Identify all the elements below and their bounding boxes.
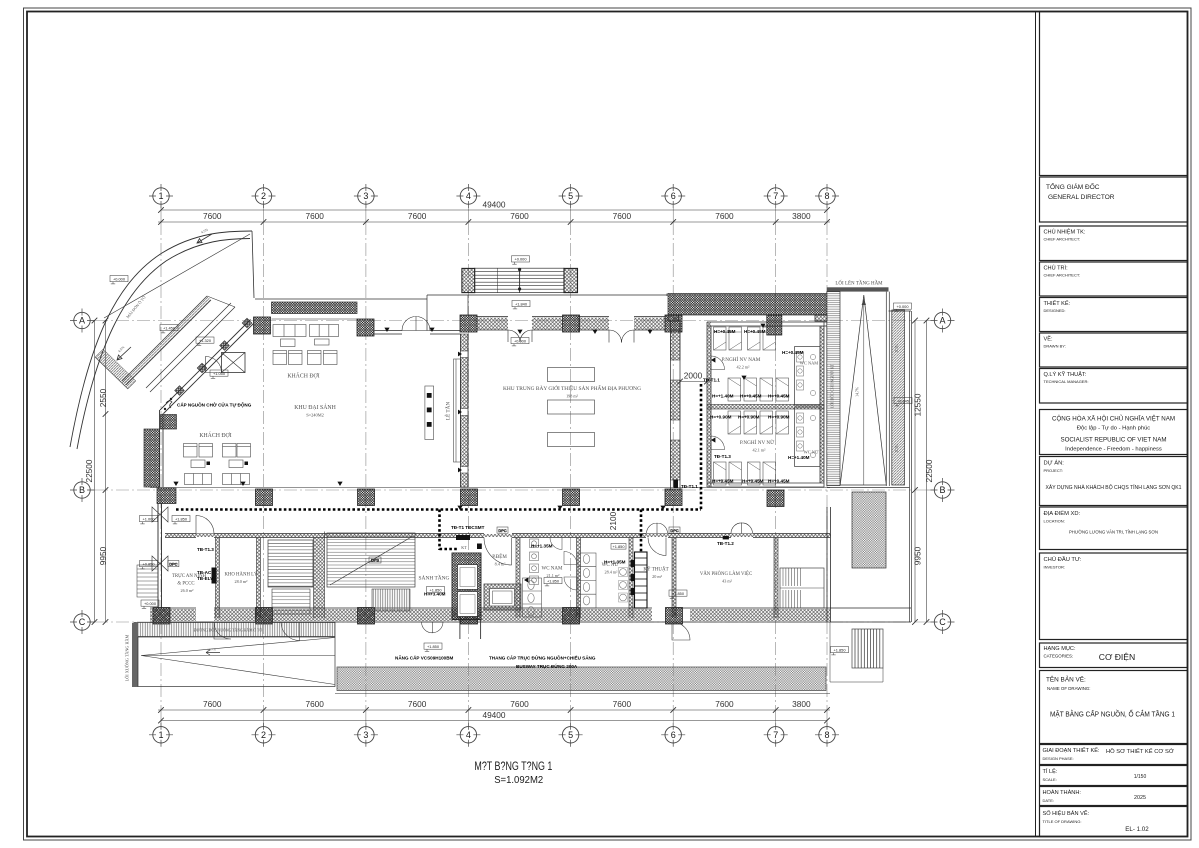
svg-text:TB-T1.2: TB-T1.2 <box>717 541 734 546</box>
svg-text:A: A <box>939 316 945 326</box>
svg-text:20 m²: 20 m² <box>652 574 662 579</box>
svg-text:CHỦ ĐẦU TƯ:: CHỦ ĐẦU TƯ: <box>1044 556 1082 563</box>
svg-text:2100: 2100 <box>608 511 618 530</box>
svg-text:TĐ-T1.1: TĐ-T1.1 <box>681 484 698 489</box>
svg-text:TECHNICAL MANAGER:: TECHNICAL MANAGER: <box>1044 379 1089 384</box>
svg-text:C: C <box>79 617 86 627</box>
svg-text:7600: 7600 <box>408 211 427 221</box>
svg-text:+1.320: +1.320 <box>199 338 212 343</box>
svg-text:+1.000: +1.000 <box>142 516 155 521</box>
svg-text:MẶT BẰNG CẤP NGUỒN, Ổ CẮM TẦNG: MẶT BẰNG CẤP NGUỒN, Ổ CẮM TẦNG 1 <box>1050 709 1175 719</box>
svg-text:LỄ TÂN: LỄ TÂN <box>444 402 452 420</box>
svg-text:+1.850: +1.850 <box>429 587 442 592</box>
svg-text:+0.000: +0.000 <box>113 276 126 281</box>
svg-text:22500: 22500 <box>924 459 934 482</box>
svg-text:CHỦ NHIỆM TK:: CHỦ NHIỆM TK: <box>1044 228 1086 236</box>
svg-text:Độc lập - Tự do - Hạnh phúc: Độc lập - Tự do - Hạnh phúc <box>1077 426 1150 432</box>
svg-text:KT: KT <box>461 545 467 550</box>
svg-text:TĐ-T1.3: TĐ-T1.3 <box>714 454 731 459</box>
svg-text:CHIEF ARCHITECT:: CHIEF ARCHITECT: <box>1044 237 1080 242</box>
svg-text:VẼ:: VẼ: <box>1044 336 1053 343</box>
svg-text:28.4 m²: 28.4 m² <box>605 570 619 575</box>
svg-text:2: 2 <box>261 730 266 740</box>
svg-text:INVESTOR:: INVESTOR: <box>1044 565 1066 570</box>
svg-text:DESIGN PHASE:: DESIGN PHASE: <box>1043 756 1074 761</box>
svg-text:TB-T1.3: TB-T1.3 <box>197 547 214 552</box>
svg-text:3: 3 <box>363 730 368 740</box>
svg-text:PHƯỜNG LƯƠNG VĂN TRI, TỈNH LẠN: PHƯỜNG LƯƠNG VĂN TRI, TỈNH LẠNG SƠN <box>1069 530 1158 535</box>
svg-text:7600: 7600 <box>715 211 734 221</box>
svg-text:SẢNH TẦNG: SẢNH TẦNG <box>419 574 450 582</box>
svg-text:NAME OF DRAWING:: NAME OF DRAWING: <box>1047 686 1091 691</box>
svg-text:H=+0.45M: H=+0.45M <box>744 329 766 334</box>
svg-text:+1.850: +1.850 <box>612 544 625 549</box>
svg-text:TITLE OF DRAWING:: TITLE OF DRAWING: <box>1043 819 1082 824</box>
svg-text:CHỦ TRÌ:: CHỦ TRÌ: <box>1044 265 1069 272</box>
svg-text:+0.845: +0.845 <box>897 398 909 403</box>
svg-text:H=+1.35M: H=+1.35M <box>604 560 626 565</box>
svg-text:14.7%: 14.7% <box>856 386 860 397</box>
svg-text:TĐ-T1 TĐCSMT: TĐ-T1 TĐCSMT <box>451 525 485 530</box>
svg-text:2: 2 <box>261 191 266 201</box>
svg-text:ĐỊA ĐIỂM XD:: ĐỊA ĐIỂM XD: <box>1044 510 1081 517</box>
svg-text:1: 1 <box>158 730 163 740</box>
svg-text:+0.000: +0.000 <box>514 257 527 262</box>
svg-text:XÂY DỰNG NHÀ KHÁCH BỘ CHQS TỈN: XÂY DỰNG NHÀ KHÁCH BỘ CHQS TỈNH LẠNG SƠN… <box>1046 484 1182 491</box>
svg-text:CHIEF ARCHITECT:: CHIEF ARCHITECT: <box>1044 273 1080 278</box>
svg-text:198 m²: 198 m² <box>566 394 579 399</box>
svg-text:7600: 7600 <box>305 211 324 221</box>
svg-text:KỸ THUẬT: KỸ THUẬT <box>643 567 668 573</box>
svg-text:8.3%: 8.3% <box>895 444 899 452</box>
svg-text:49400: 49400 <box>482 200 505 210</box>
svg-text:1/150: 1/150 <box>1134 774 1147 780</box>
svg-text:H=+0.45M: H=+0.45M <box>782 350 804 355</box>
svg-text:P.NGHỈ NV NAM: P.NGHỈ NV NAM <box>722 355 761 363</box>
svg-text:DATE:: DATE: <box>1043 798 1054 803</box>
svg-text:22500: 22500 <box>84 459 94 482</box>
svg-text:4: 4 <box>466 730 471 740</box>
svg-text:B: B <box>939 485 945 495</box>
svg-text:1: 1 <box>158 191 163 201</box>
svg-text:42.2 m²: 42.2 m² <box>737 365 751 370</box>
svg-text:GENERAL DIRECTOR: GENERAL DIRECTOR <box>1048 194 1115 201</box>
svg-text:+1.850: +1.850 <box>672 591 685 596</box>
svg-text:6: 6 <box>671 730 676 740</box>
svg-text:H=+0.45M: H=+0.45M <box>768 479 790 484</box>
svg-text:+1.850: +1.850 <box>175 516 188 521</box>
svg-text:+1.840: +1.840 <box>515 301 528 306</box>
svg-text:+1.050: +1.050 <box>213 371 226 376</box>
svg-text:42.1 m²: 42.1 m² <box>753 448 767 453</box>
svg-text:28.0 m²: 28.0 m² <box>235 579 249 584</box>
svg-text:KHÁCH ĐỢI: KHÁCH ĐỢI <box>287 372 319 380</box>
svg-text:NÂNG CẤP VCS09H100BM: NÂNG CẤP VCS09H100BM <box>395 655 454 661</box>
svg-text:KHÁCH ĐỢI: KHÁCH ĐỢI <box>199 431 231 439</box>
svg-text:26.0 m²: 26.0 m² <box>181 588 195 593</box>
svg-text:GIAI ĐOẠN THIẾT KẾ:: GIAI ĐOẠN THIẾT KẾ: <box>1043 747 1100 754</box>
svg-text:9950: 9950 <box>913 546 923 565</box>
svg-text:KHU ĐẠI SẢNH: KHU ĐẠI SẢNH <box>294 403 336 411</box>
svg-text:49400: 49400 <box>482 710 505 720</box>
svg-text:H=+0.90M: H=+0.90M <box>738 415 760 420</box>
svg-text:TÊN BẢN VẼ:: TÊN BẢN VẼ: <box>1046 675 1086 684</box>
svg-text:CƠ ĐIỆN: CƠ ĐIỆN <box>1099 652 1136 662</box>
svg-text:+0.000: +0.000 <box>514 338 527 343</box>
svg-text:7600: 7600 <box>613 699 632 709</box>
svg-text:7600: 7600 <box>305 699 324 709</box>
svg-text:TB-AC: TB-AC <box>197 570 212 575</box>
svg-text:DPC: DPC <box>169 561 177 566</box>
svg-text:KHO HÀNH LÝ: KHO HÀNH LÝ <box>224 572 258 578</box>
svg-text:DPC: DPC <box>498 528 506 533</box>
svg-text:HỒ SƠ THIẾT KẾ CƠ SỞ: HỒ SƠ THIẾT KẾ CƠ SỞ <box>1106 748 1174 755</box>
svg-text:PROJECT:: PROJECT: <box>1044 468 1063 473</box>
svg-text:LỐI XUỐNG TẦNG HẦM: LỐI XUỐNG TẦNG HẦM <box>125 634 130 681</box>
svg-text:H=+0.45M: H=+0.45M <box>712 479 734 484</box>
svg-text:CATEGORIES:: CATEGORIES: <box>1044 654 1074 659</box>
svg-text:7600: 7600 <box>613 211 632 221</box>
svg-text:7600: 7600 <box>203 211 222 221</box>
svg-text:7600: 7600 <box>715 699 734 709</box>
svg-text:TỈ LỆ:: TỈ LỆ: <box>1043 767 1058 775</box>
svg-text:S=1.092M2: S=1.092M2 <box>494 775 543 786</box>
svg-text:7: 7 <box>773 730 778 740</box>
svg-text:S=240M2: S=240M2 <box>306 413 324 418</box>
svg-text:9950: 9950 <box>98 546 108 565</box>
svg-text:H=+0.45M: H=+0.45M <box>714 329 736 334</box>
svg-text:P.ĐỆM: P.ĐỆM <box>492 554 507 560</box>
svg-text:LỐI LÊN TẦNG HẦM: LỐI LÊN TẦNG HẦM <box>835 281 883 287</box>
svg-text:THIẾT KẾ:: THIẾT KẾ: <box>1044 300 1071 307</box>
svg-text:2000: 2000 <box>684 371 703 381</box>
svg-text:H=+0.90M: H=+0.90M <box>710 415 732 420</box>
svg-text:3: 3 <box>363 191 368 201</box>
svg-text:Independence - Freedom - happi: Independence - Freedom - happiness <box>1065 447 1162 453</box>
svg-text:HOÀN THÀNH:: HOÀN THÀNH: <box>1043 789 1082 796</box>
svg-text:SỐ HIỆU BẢN VẼ:: SỐ HIỆU BẢN VẼ: <box>1043 809 1090 817</box>
svg-text:& PCCC: & PCCC <box>177 582 194 587</box>
svg-text:WC NAM: WC NAM <box>542 567 564 572</box>
svg-text:+1.850: +1.850 <box>427 644 440 649</box>
svg-text:14.7%: 14.7% <box>207 648 216 652</box>
svg-text:8: 8 <box>824 730 829 740</box>
svg-text:7600: 7600 <box>510 699 529 709</box>
svg-text:DỰ ÁN:: DỰ ÁN: <box>1044 460 1065 467</box>
svg-text:+1.850: +1.850 <box>547 578 560 583</box>
svg-text:BUSWAY TRỤC ĐỨNG 200A: BUSWAY TRỤC ĐỨNG 200A <box>516 663 578 669</box>
svg-text:7600: 7600 <box>203 699 222 709</box>
svg-text:7600: 7600 <box>408 699 427 709</box>
svg-text:TĐ-T1.1: TĐ-T1.1 <box>703 378 720 383</box>
svg-text:ĐƯỜNG DỐC XUỐNG TẦNG HẦM Ô TÔ: ĐƯỜNG DỐC XUỐNG TẦNG HẦM Ô TÔ <box>194 628 263 633</box>
svg-text:CẤP NGUỒN CHỜ CỬA TỰ ĐỘNG: CẤP NGUỒN CHỜ CỬA TỰ ĐỘNG <box>177 401 252 408</box>
svg-text:8.4 m²: 8.4 m² <box>495 562 507 567</box>
svg-text:H=+0.45M: H=+0.45M <box>768 394 790 399</box>
svg-text:EL- 1.02: EL- 1.02 <box>1125 826 1149 833</box>
svg-text:M?T B?NG T?NG 1: M?T B?NG T?NG 1 <box>474 761 552 773</box>
svg-text:HẠNG MỤC:: HẠNG MỤC: <box>1044 646 1076 652</box>
svg-text:H=+0.90M: H=+0.90M <box>768 415 790 420</box>
svg-text:8.3%: 8.3% <box>895 344 899 352</box>
svg-text:DPS: DPS <box>371 558 379 563</box>
svg-text:SOCIALIST REPUBLIC OF VIET NAM: SOCIALIST REPUBLIC OF VIET NAM <box>1060 437 1166 444</box>
svg-text:DRAWN BY:: DRAWN BY: <box>1044 344 1066 349</box>
svg-text:LOCATION:: LOCATION: <box>1044 519 1065 524</box>
svg-text:B: B <box>79 485 85 495</box>
svg-text:LỐI DỐC CHO NGƯỜI KT: LỐI DỐC CHO NGƯỜI KT <box>830 363 835 407</box>
svg-text:+1.450: +1.450 <box>163 325 176 330</box>
svg-text:+0.850: +0.850 <box>142 561 155 566</box>
svg-text:3800: 3800 <box>792 699 811 709</box>
svg-text:VĂN PHÒNG LÀM VIỆC: VĂN PHÒNG LÀM VIỆC <box>700 571 752 577</box>
svg-text:H=+1.40M: H=+1.40M <box>712 394 734 399</box>
svg-text:7600: 7600 <box>510 211 529 221</box>
svg-text:3800: 3800 <box>792 211 811 221</box>
svg-text:5: 5 <box>568 191 573 201</box>
svg-text:CỘNG HÒA XÃ HỘI CHỦ NGHĨA VIỆT: CỘNG HÒA XÃ HỘI CHỦ NGHĨA VIỆT NAM <box>1052 415 1175 423</box>
svg-text:C: C <box>939 617 946 627</box>
svg-text:5: 5 <box>568 730 573 740</box>
svg-text:H=+0.45M: H=+0.45M <box>740 394 762 399</box>
svg-text:WC NỮ: WC NỮ <box>804 450 819 455</box>
svg-text:H=+1.40M: H=+1.40M <box>788 455 810 460</box>
svg-text:H=+1.35M: H=+1.35M <box>531 544 553 549</box>
svg-text:H=+0.45M: H=+0.45M <box>742 479 764 484</box>
svg-text:2025: 2025 <box>1134 795 1146 801</box>
svg-text:WC NAM: WC NAM <box>800 361 819 366</box>
svg-text:THANG CÁP TRỤC ĐỨNG NGUỒN+CHIẾ: THANG CÁP TRỤC ĐỨNG NGUỒN+CHIẾU SÁNG <box>489 655 596 661</box>
svg-text:8: 8 <box>824 191 829 201</box>
svg-text:A: A <box>79 316 85 326</box>
svg-text:KHU TRUNG BÀY GIỚI THIỆU SẢN P: KHU TRUNG BÀY GIỚI THIỆU SẢN PHẨM ĐỊA PH… <box>503 384 641 392</box>
svg-text:+0.000: +0.000 <box>896 304 909 309</box>
svg-text:4: 4 <box>466 191 471 201</box>
svg-text:2550: 2550 <box>98 388 108 407</box>
svg-text:SCALE:: SCALE: <box>1043 777 1057 782</box>
svg-text:6: 6 <box>671 191 676 201</box>
svg-text:+0.000: +0.000 <box>144 601 157 606</box>
svg-text:DESIGNED:: DESIGNED: <box>1044 308 1066 313</box>
svg-text:Q.LÝ KỸ THUẬT:: Q.LÝ KỸ THUẬT: <box>1044 371 1087 378</box>
svg-text:DPC: DPC <box>670 528 678 533</box>
svg-text:7: 7 <box>773 191 778 201</box>
svg-text:43 m²: 43 m² <box>722 579 732 584</box>
svg-text:+1.850: +1.850 <box>833 647 846 652</box>
svg-text:12550: 12550 <box>913 393 923 416</box>
svg-text:TB-ELV: TB-ELV <box>197 576 214 581</box>
svg-text:P.NGHỈ NV NỮ: P.NGHỈ NV NỮ <box>740 438 775 446</box>
